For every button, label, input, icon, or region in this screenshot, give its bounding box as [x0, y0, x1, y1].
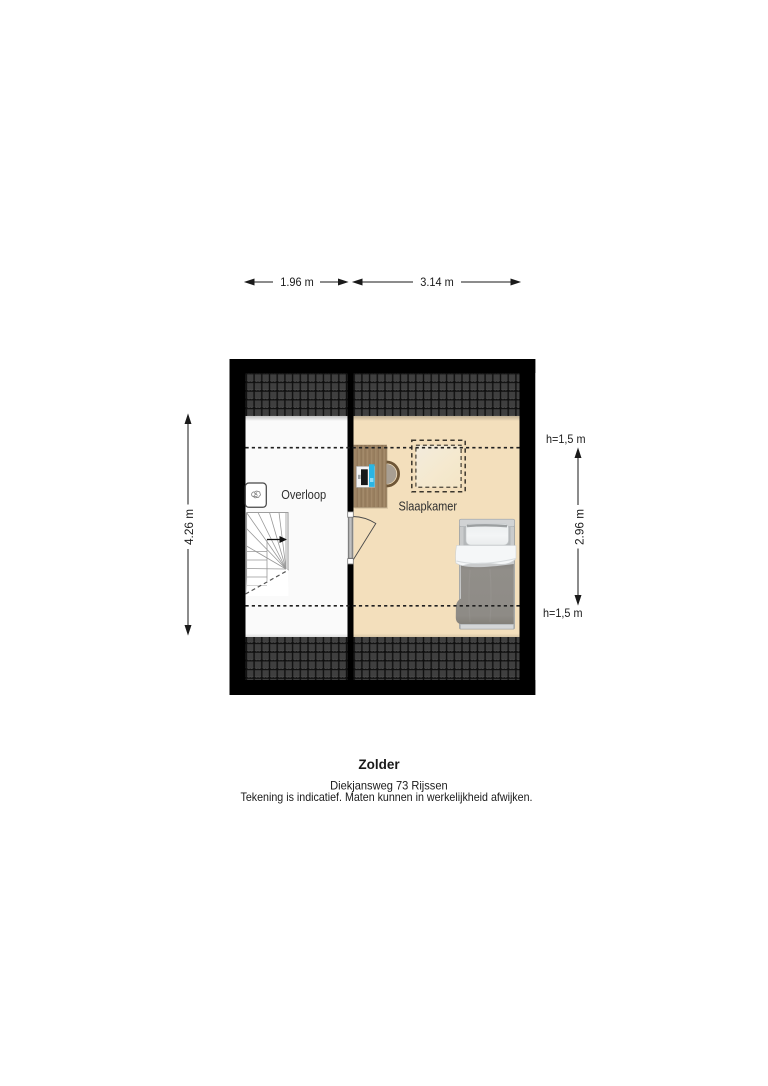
svg-text:2.96 m: 2.96 m	[573, 509, 587, 545]
svg-text:Tekening is indicatief. Maten: Tekening is indicatief. Maten kunnen in …	[241, 790, 533, 804]
svg-text:h=1,5 m: h=1,5 m	[543, 606, 583, 620]
svg-text:Slaapkamer: Slaapkamer	[399, 500, 458, 514]
svg-text:4.26 m: 4.26 m	[182, 509, 196, 545]
svg-text:h=1,5 m: h=1,5 m	[546, 432, 586, 446]
svg-text:1.96 m: 1.96 m	[280, 275, 314, 289]
svg-text:Overloop: Overloop	[281, 488, 326, 502]
svg-text:3.14 m: 3.14 m	[420, 275, 454, 289]
svg-text:Zolder: Zolder	[358, 757, 400, 772]
